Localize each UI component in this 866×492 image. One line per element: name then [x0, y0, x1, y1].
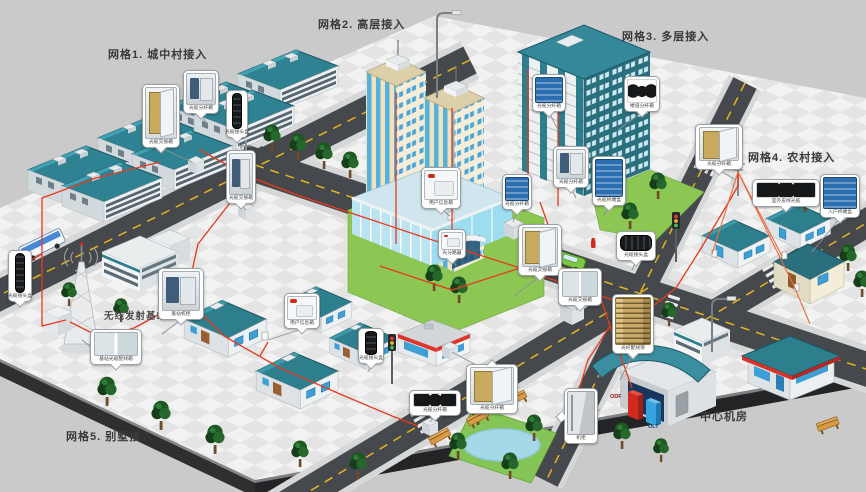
callout-odf-rack: 光纤配线架: [612, 294, 654, 354]
callout-splice-closure: 光缆接头盒: [8, 250, 32, 302]
panel-icon: [505, 177, 529, 201]
callout-base-station-cabinet: 基站机柜: [158, 268, 204, 320]
device-icon: [413, 393, 457, 407]
callout-termination-box: 光缆终端盒: [592, 156, 626, 206]
callout-subscriber-info-box: 用户信息箱: [284, 293, 320, 329]
closure-icon: [620, 235, 653, 252]
odf-cabinet: [628, 392, 638, 420]
cabinet-open-icon: [145, 87, 176, 139]
label-grid3: 网格3. 多层接入: [622, 28, 709, 44]
callout-home-terminal-box: 入户终端盒: [820, 174, 860, 218]
label-grid1: 网格1. 城中村接入: [108, 46, 207, 62]
callout-splice-closure: 光缆接头盒: [358, 328, 384, 364]
closure-icon: [232, 93, 241, 129]
callout-splice-closure: 光缆接头盒: [226, 90, 248, 138]
callout-cross-connect-cabinet: 光缆交接箱: [518, 224, 562, 276]
cabinet-open-icon: [699, 127, 740, 161]
callout-cross-connect-cabinet: 光缆交接箱: [558, 268, 602, 306]
label-odf: ODF: [610, 394, 622, 400]
panel-icon: [823, 177, 856, 209]
wall-box-icon: [287, 296, 317, 320]
callout-distribution-box: 光缆分纤箱: [553, 146, 589, 188]
fire-hydrant: [591, 238, 596, 248]
cabinet-open-icon: [470, 367, 514, 405]
wall-box-icon: [424, 170, 457, 200]
callout-subscriber-info-box: 用户信息箱: [421, 167, 461, 209]
callout-splice-closure: 光缆接头盒: [616, 231, 656, 261]
device-icon: [627, 79, 657, 103]
callout-corridor-fiber-box: 楼道分纤箱: [624, 76, 660, 112]
callout-base-station-distribution-box: 基站光缆配线箱: [90, 329, 142, 365]
label-olt: OLT: [648, 424, 659, 430]
callout-cross-connect-cabinet: 光缆交接箱: [142, 84, 180, 148]
callout-distribution-box: 光缆分纤箱: [466, 364, 518, 414]
label-grid2: 网格2. 高层接入: [318, 16, 405, 32]
odf-rack-icon: [615, 297, 650, 345]
callout-distribution-box: 光缆分纤箱: [183, 70, 219, 114]
closure-icon: [365, 331, 376, 355]
label-central-office: 中心机房: [700, 408, 748, 424]
callout-distribution-box: 光缆分纤箱: [532, 74, 566, 112]
panel-icon: [595, 159, 623, 197]
diagram-canvas: 网格1. 城中村接入 网格2. 高层接入 网格3. 多层接入 网格4. 农村接入…: [0, 0, 866, 492]
callout-optical-splitter: 光分路器: [438, 229, 466, 259]
cabinet-icon: [556, 149, 586, 179]
park-pond: [464, 429, 540, 461]
callout-cross-connect-cabinet: 光缆交接箱: [226, 150, 256, 204]
callout-distribution-box: 光缆分纤箱: [502, 174, 532, 210]
label-grid5: 网格5. 别墅接入: [66, 428, 153, 444]
cable-hardware-icon: [756, 182, 815, 198]
olt-cabinet: [646, 400, 656, 426]
callout-equipment-rack: 机柜: [564, 388, 598, 444]
panel-icon: [535, 77, 563, 103]
callout-distribution-box: 光缆分纤箱: [409, 390, 461, 416]
cabinet-icon: [186, 73, 216, 105]
callout-drop-cable: 室外皮线光缆: [752, 179, 820, 207]
callout-distribution-box: 光缆分纤箱: [695, 124, 743, 170]
cabinet-icon: [162, 271, 201, 311]
label-grid4: 网格4. 农村接入: [748, 149, 835, 165]
closure-icon: [15, 253, 25, 293]
rack-cabinet-icon: [567, 391, 595, 435]
cabinet-icon: [229, 153, 253, 195]
splitter-icon: [441, 232, 463, 250]
cabinet-icon: [562, 271, 599, 297]
cabinet-icon: [94, 332, 138, 356]
cabinet-open-icon: [522, 227, 559, 267]
